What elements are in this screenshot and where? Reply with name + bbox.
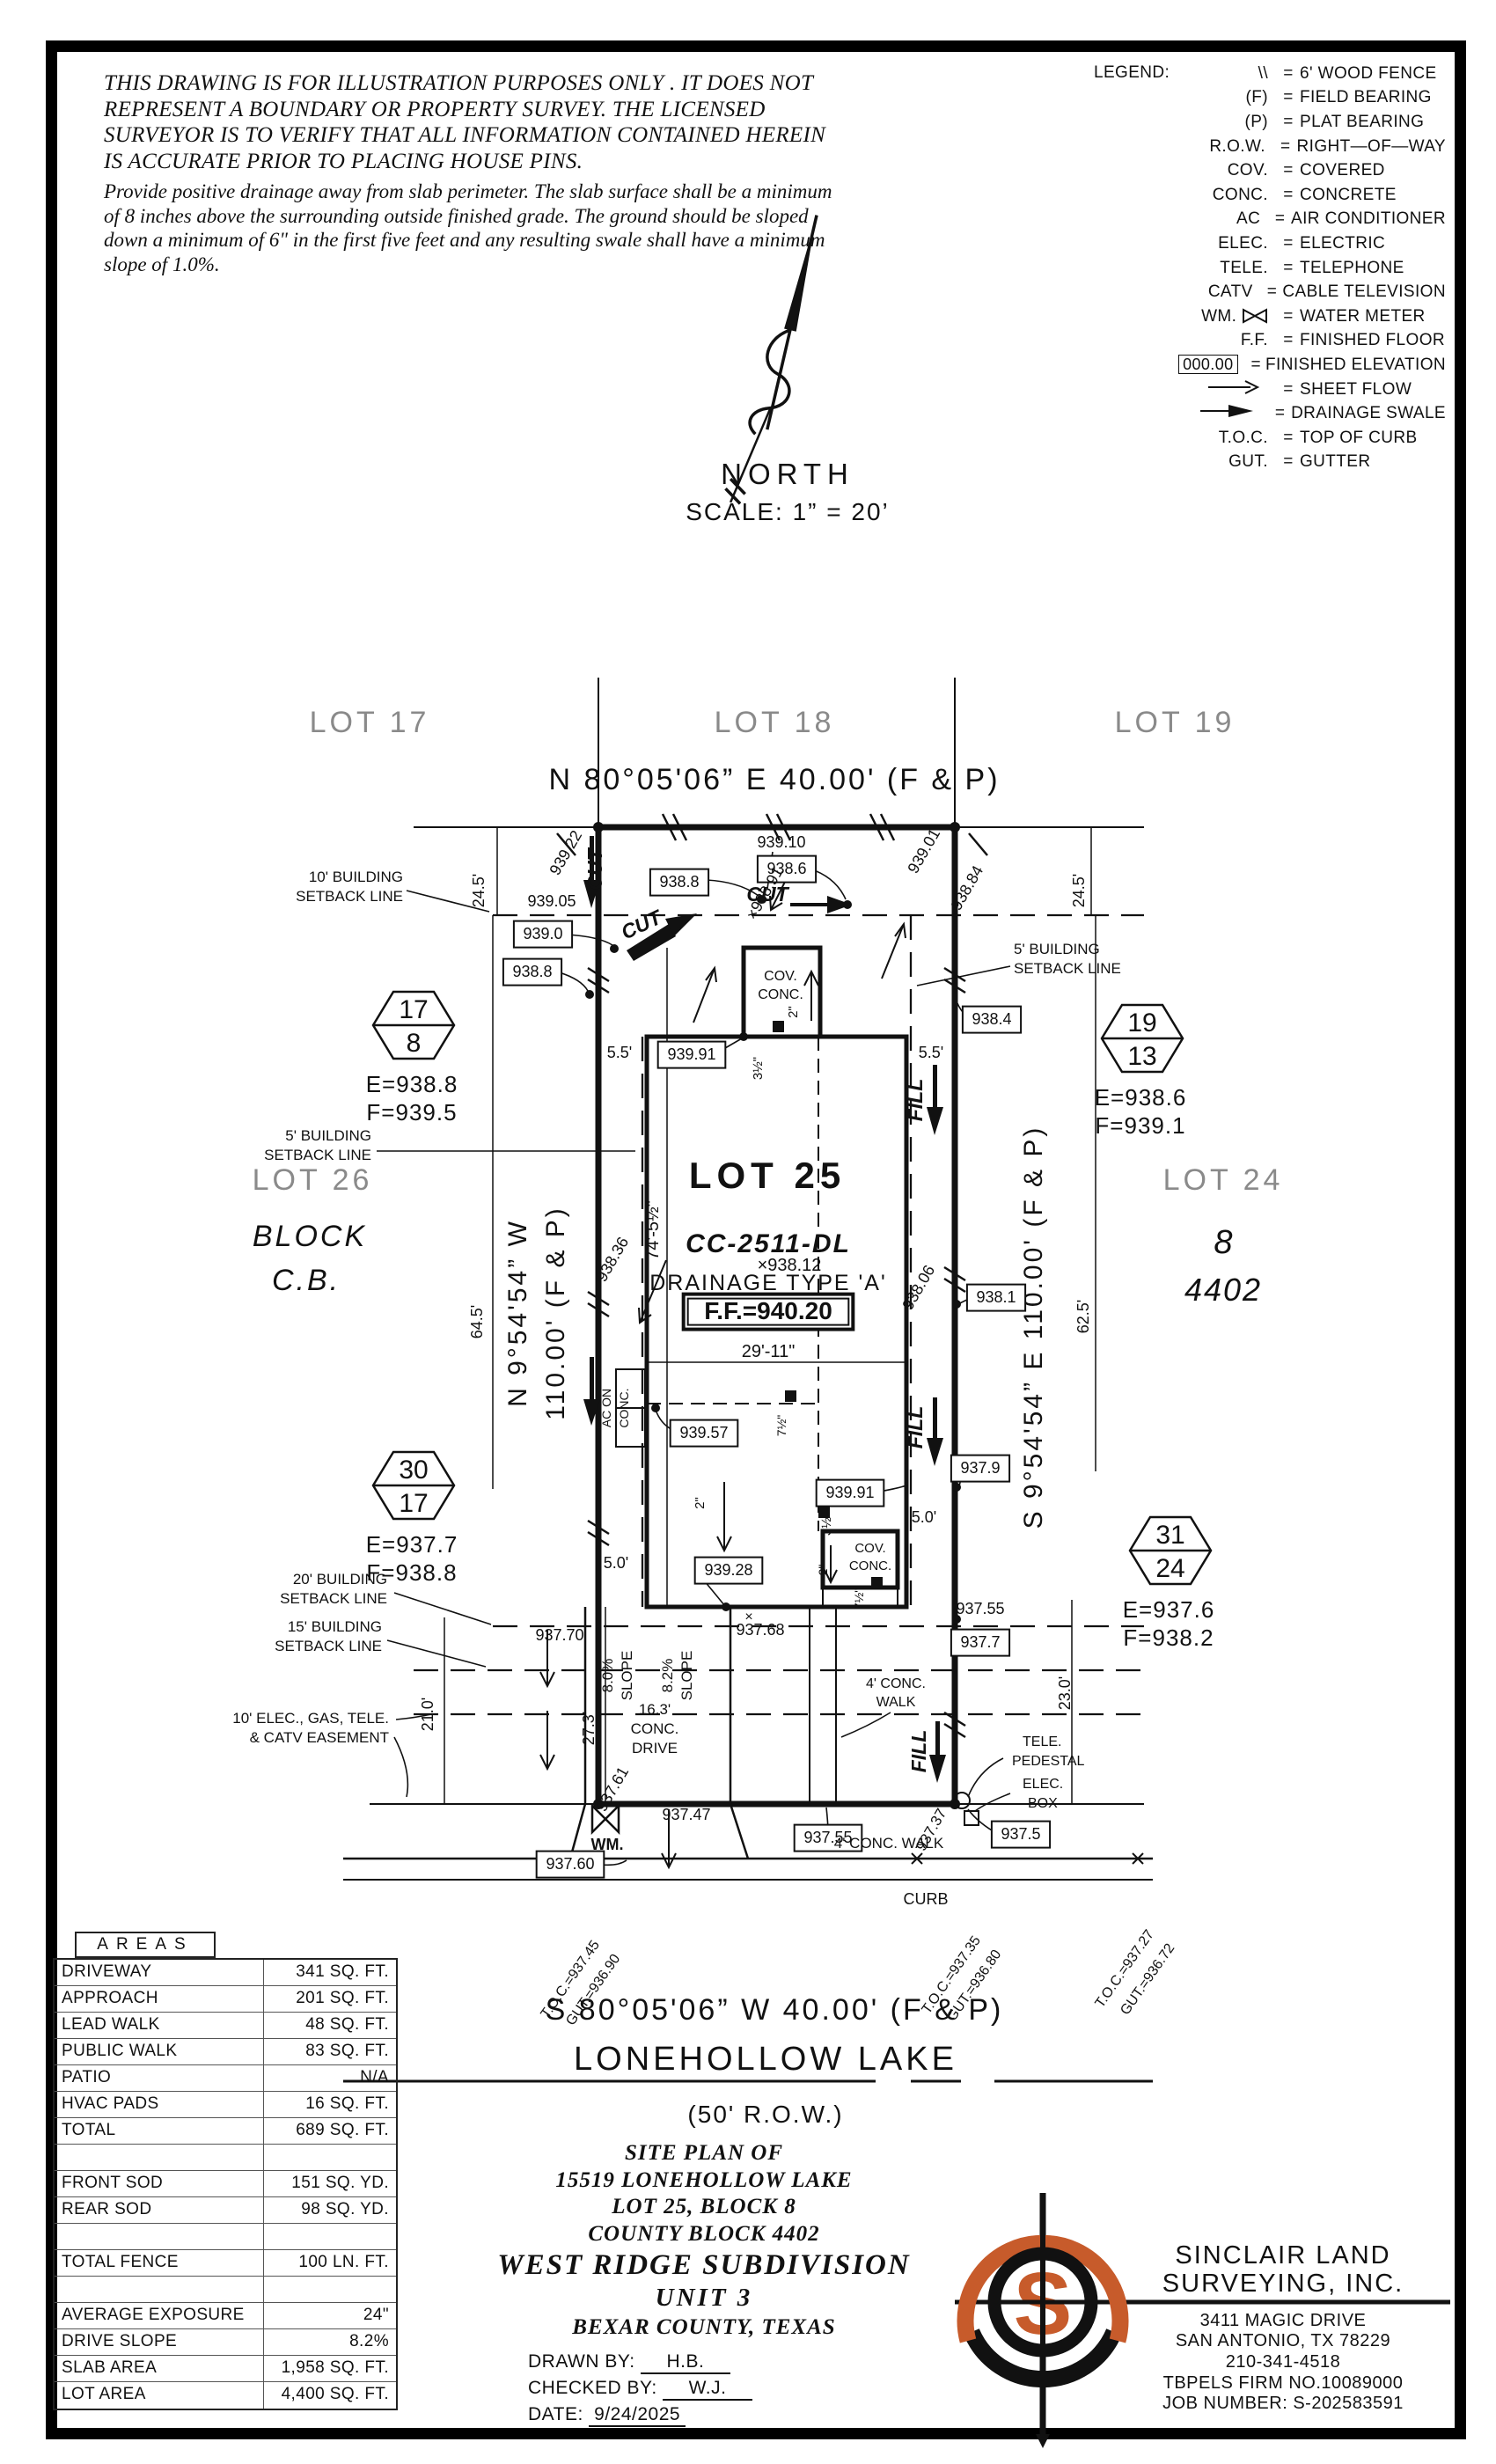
areas-row-3: PUBLIC WALK83 SQ. FT. xyxy=(55,2039,396,2065)
survey-sheet: THIS DRAWING IS FOR ILLUSTRATION PURPOSE… xyxy=(0,0,1496,2464)
date-value: 9/24/2025 xyxy=(589,2404,686,2427)
svg-text:17: 17 xyxy=(399,1489,428,1518)
plan-label-63: 937.70 xyxy=(535,1626,583,1644)
plan-label-115: LONEHOLLOW LAKE xyxy=(574,2041,957,2078)
plan-label-65: 62.5' xyxy=(1074,1300,1092,1333)
plan-label-15: CUT xyxy=(583,847,606,890)
areas-row-0: DRIVEWAY341 SQ. FT. xyxy=(55,1960,396,1986)
plan-label-116: (50' R.O.W.) xyxy=(687,2101,843,2128)
plan-label-74: LOT 24 xyxy=(1163,1163,1284,1197)
date-label: DATE: xyxy=(528,2404,583,2424)
plan-label-91: DRIVE xyxy=(632,1740,678,1756)
plan-label-70: FILL xyxy=(907,1730,930,1773)
title-line-3: COUNTY BLOCK 4402 xyxy=(475,2221,933,2248)
plan-label-13: 938.8 xyxy=(512,963,552,980)
firm-address1: 3411 MAGIC DRIVE xyxy=(1116,2311,1450,2332)
plan-label-64: S 9°54'54” E 110.00' (F & P) xyxy=(1019,1126,1048,1529)
areas-row-9: REAR SOD98 SQ. YD. xyxy=(55,2197,396,2224)
plan-label-41: CC-2511-DL xyxy=(686,1229,851,1258)
areas-row-1: APPROACH201 SQ. FT. xyxy=(55,1986,396,2013)
plan-label-106: 4' CONC. WALK xyxy=(834,1835,944,1852)
plan-label-51: 939.91 xyxy=(825,1484,874,1501)
plan-label-50: 2" xyxy=(693,1497,708,1509)
north-arrow-icon xyxy=(722,209,829,510)
plan-label-20: 24.5' xyxy=(470,874,488,907)
plan-label-26: 939.91 xyxy=(667,1045,715,1063)
plan-label-48: CONC. xyxy=(617,1388,631,1427)
plan-label-19: SETBACK LINE xyxy=(296,888,403,905)
areas-row-10 xyxy=(55,2224,396,2250)
areas-row-5: HVAC PADS16 SQ. FT. xyxy=(55,2092,396,2118)
areas-row-2: LEAD WALK48 SQ. FT. xyxy=(55,2013,396,2039)
plan-label-79: 15' BUILDING xyxy=(288,1618,382,1635)
title-line-1: 15519 LONEHOLLOW LAKE xyxy=(475,2167,933,2195)
drawn-by-value: H.B. xyxy=(641,2351,730,2374)
firm-number: TBPELS FIRM NO.10089000 xyxy=(1116,2373,1450,2394)
plan-label-58: 7½" xyxy=(852,1588,866,1610)
plan-label-6: 939.01 xyxy=(904,825,943,876)
areas-row-13: AVERAGE EXPOSURE24" xyxy=(55,2303,396,2329)
benchmark-hexagon-0: 178E=938.8F=939.5 xyxy=(366,992,458,1126)
plan-label-29: 2" xyxy=(786,1006,801,1018)
checked-by-label: CHECKED BY: xyxy=(528,2378,657,2398)
plan-label-5: 939.10 xyxy=(757,833,805,851)
plan-label-1: LOT 18 xyxy=(715,706,835,739)
plan-label-28: CONC. xyxy=(758,987,803,1002)
plan-label-114: S 80°05'06” W 40.00' (F & P) xyxy=(546,1993,1004,2027)
title-block: SITE PLAN OF15519 LONEHOLLOW LAKELOT 25,… xyxy=(475,2140,933,2341)
svg-text:E=938.6: E=938.6 xyxy=(1095,1084,1187,1111)
plan-label-32: BLOCK xyxy=(253,1220,367,1253)
plan-label-82: & CATV EASEMENT xyxy=(250,1729,389,1746)
areas-row-6: TOTAL689 SQ. FT. xyxy=(55,2118,396,2145)
plan-label-97: BOX xyxy=(1028,1796,1058,1811)
plan-label-49: 939.57 xyxy=(679,1424,728,1441)
plan-label-102: 937.60 xyxy=(546,1855,594,1873)
firm-address2: SAN ANTONIO, TX 78229 xyxy=(1116,2331,1450,2352)
signoff-block: DRAWN BY: H.B. CHECKED BY: W.J. DATE: 9/… xyxy=(528,2351,880,2431)
plan-label-45: 74'-5½" xyxy=(643,1200,663,1260)
plan-label-78: SETBACK LINE xyxy=(280,1590,387,1607)
plan-label-83: 21.0' xyxy=(419,1698,436,1731)
areas-row-11: TOTAL FENCE100 LN. FT. xyxy=(55,2250,396,2277)
svg-text:24: 24 xyxy=(1155,1554,1184,1583)
benchmark-hexagon-3: 3124E=937.6F=938.2 xyxy=(1123,1517,1215,1651)
plan-label-3: N 80°05'06” E 40.00' (F & P) xyxy=(548,763,1000,796)
plan-label-105: 937.5 xyxy=(1001,1825,1040,1843)
plan-label-27: COV. xyxy=(764,969,797,984)
areas-row-14: DRIVE SLOPE8.2% xyxy=(55,2329,396,2356)
areas-row-15: SLAB AREA1,958 SQ. FT. xyxy=(55,2356,396,2382)
plan-label-54: 5.0' xyxy=(604,1554,628,1572)
plan-label-95: PEDESTAL xyxy=(1012,1754,1085,1769)
plan-label-67: 938.1 xyxy=(976,1288,1016,1306)
checked-by-value: W.J. xyxy=(663,2378,752,2401)
plan-label-53: 5.0' xyxy=(912,1508,936,1526)
plan-labels: LOT 17LOT 18LOT 19N 80°05'06” E 40.00' (… xyxy=(232,706,1283,2128)
plan-label-84: 27.3' xyxy=(580,1712,598,1745)
svg-text:F=938.2: F=938.2 xyxy=(1123,1624,1214,1651)
plan-label-25: 5.5' xyxy=(919,1044,943,1061)
plan-label-0: LOT 17 xyxy=(310,706,430,739)
plan-label-62: 937.68 xyxy=(736,1621,784,1639)
svg-text:8: 8 xyxy=(407,1029,422,1058)
plan-label-18: 10' BUILDING xyxy=(309,869,403,885)
firm-block: SINCLAIR LAND SURVEYING, INC. 3411 MAGIC… xyxy=(1116,2242,1450,2415)
plan-label-35: 110.00' (F & P) xyxy=(541,1206,570,1420)
title-line-6: BEXAR COUNTY, TEXAS xyxy=(475,2314,933,2342)
plan-label-43: DRAINAGE TYPE 'A' xyxy=(649,1271,887,1295)
svg-text:17: 17 xyxy=(399,995,428,1024)
svg-text:F=939.5: F=939.5 xyxy=(366,1099,457,1126)
plan-label-56: CONC. xyxy=(849,1558,891,1573)
areas-row-12 xyxy=(55,2277,396,2303)
svg-text:F=938.8: F=938.8 xyxy=(366,1559,457,1586)
plan-label-69: FILL xyxy=(904,1406,927,1449)
plan-label-52: 3½" xyxy=(819,1513,834,1536)
title-line-0: SITE PLAN OF xyxy=(475,2140,933,2167)
areas-row-7 xyxy=(55,2145,396,2171)
plan-label-93: WALK xyxy=(876,1695,916,1710)
plan-label-30: 3½" xyxy=(751,1057,766,1080)
plan-label-96: ELEC. xyxy=(1023,1777,1063,1792)
drawn-by-label: DRAWN BY: xyxy=(528,2351,635,2372)
plan-label-44: F.F.=940.20 xyxy=(704,1297,832,1324)
plan-label-86: SLOPE xyxy=(619,1651,635,1701)
svg-text:E=937.6: E=937.6 xyxy=(1123,1596,1215,1623)
plan-label-12: 939.0 xyxy=(523,925,562,942)
plan-label-9: 938.8 xyxy=(659,873,699,891)
plan-label-73: 937.7 xyxy=(960,1633,1000,1651)
title-line-4: WEST RIDGE SUBDIVISION xyxy=(475,2248,933,2283)
plan-label-21: 24.5' xyxy=(1070,874,1088,907)
plan-label-33: C.B. xyxy=(272,1264,341,1297)
plan-label-71: 937.9 xyxy=(960,1459,1000,1477)
title-line-5: UNIT 3 xyxy=(475,2283,933,2314)
plan-label-60: 939.28 xyxy=(704,1561,752,1579)
plan-label-36: 64.5' xyxy=(468,1305,486,1338)
plan-label-23: SETBACK LINE xyxy=(1014,960,1121,977)
plan-label-17: CUT xyxy=(746,883,789,906)
leader-lines xyxy=(377,852,1010,1865)
svg-text:31: 31 xyxy=(1155,1521,1184,1550)
areas-table-title: AREAS xyxy=(75,1932,216,1958)
plan-label-31: LOT 26 xyxy=(253,1163,373,1197)
plan-label-38: 5' BUILDING xyxy=(285,1127,371,1144)
plan-label-57: 2" xyxy=(816,1565,830,1576)
plan-label-89: 16.3' xyxy=(639,1701,671,1718)
svg-text:30: 30 xyxy=(399,1456,428,1485)
plan-label-40: LOT 25 xyxy=(689,1155,846,1196)
plan-label-90: CONC. xyxy=(631,1720,679,1737)
firm-job-number: JOB NUMBER: S-202583591 xyxy=(1116,2394,1450,2415)
areas-table: DRIVEWAY341 SQ. FT.APPROACH201 SQ. FT.LE… xyxy=(53,1958,398,2410)
plan-label-107: CURB xyxy=(903,1890,948,1908)
plan-label-85: 8.0% xyxy=(599,1659,616,1693)
areas-row-4: PATION/A xyxy=(55,2065,396,2092)
benchmark-hexagon-1: 1913E=938.6F=939.1 xyxy=(1095,1005,1187,1139)
plan-label-72: 937.55 xyxy=(956,1600,1004,1617)
svg-text:E=937.7: E=937.7 xyxy=(366,1531,458,1558)
plan-label-75: 8 xyxy=(1214,1224,1232,1261)
plan-label-22: 5' BUILDING xyxy=(1014,941,1100,957)
plan-label-87: 8.2% xyxy=(659,1659,676,1693)
plan-label-76: 4402 xyxy=(1184,1272,1262,1308)
plan-label-94: TELE. xyxy=(1023,1734,1061,1749)
plan-label-88: SLOPE xyxy=(678,1651,695,1701)
plan-label-47: AC ON xyxy=(599,1389,613,1427)
plan-label-68: FILL xyxy=(904,1079,927,1122)
svg-text:E=938.8: E=938.8 xyxy=(366,1071,458,1097)
plan-label-59: 7½" xyxy=(774,1415,788,1436)
plan-label-98: 23.0' xyxy=(1056,1676,1074,1710)
plan-label-80: SETBACK LINE xyxy=(275,1638,382,1654)
areas-row-8: FRONT SOD151 SQ. YD. xyxy=(55,2171,396,2197)
plan-label-2: LOT 19 xyxy=(1115,706,1236,739)
title-line-2: LOT 25, BLOCK 8 xyxy=(475,2194,933,2221)
plan-label-34: N 9°54'54” W xyxy=(503,1219,532,1407)
areas-row-16: LOT AREA4,400 SQ. FT. xyxy=(55,2382,396,2409)
firm-name-line2: SURVEYING, INC. xyxy=(1116,2270,1450,2299)
plan-label-14: 938.4 xyxy=(972,1010,1011,1028)
plan-label-46: 29'-11" xyxy=(742,1342,796,1361)
plan-label-55: COV. xyxy=(854,1541,885,1556)
svg-text:19: 19 xyxy=(1127,1008,1156,1038)
plan-label-4: 939.22 xyxy=(546,827,585,878)
plan-label-100: 937.47 xyxy=(662,1806,710,1823)
plan-label-24: 5.5' xyxy=(607,1044,632,1061)
svg-text:F=939.1: F=939.1 xyxy=(1095,1112,1185,1139)
svg-text:13: 13 xyxy=(1127,1042,1156,1071)
plan-label-39: SETBACK LINE xyxy=(264,1147,371,1163)
firm-name-line1: SINCLAIR LAND xyxy=(1116,2242,1450,2270)
plan-label-8: 939.05 xyxy=(527,892,576,910)
firm-phone: 210-341-4518 xyxy=(1116,2352,1450,2373)
plan-label-81: 10' ELEC., GAS, TELE. xyxy=(232,1710,389,1727)
benchmark-hexagon-2: 3017E=937.7F=938.8 xyxy=(366,1452,458,1586)
plan-label-92: 4' CONC. xyxy=(866,1676,926,1691)
